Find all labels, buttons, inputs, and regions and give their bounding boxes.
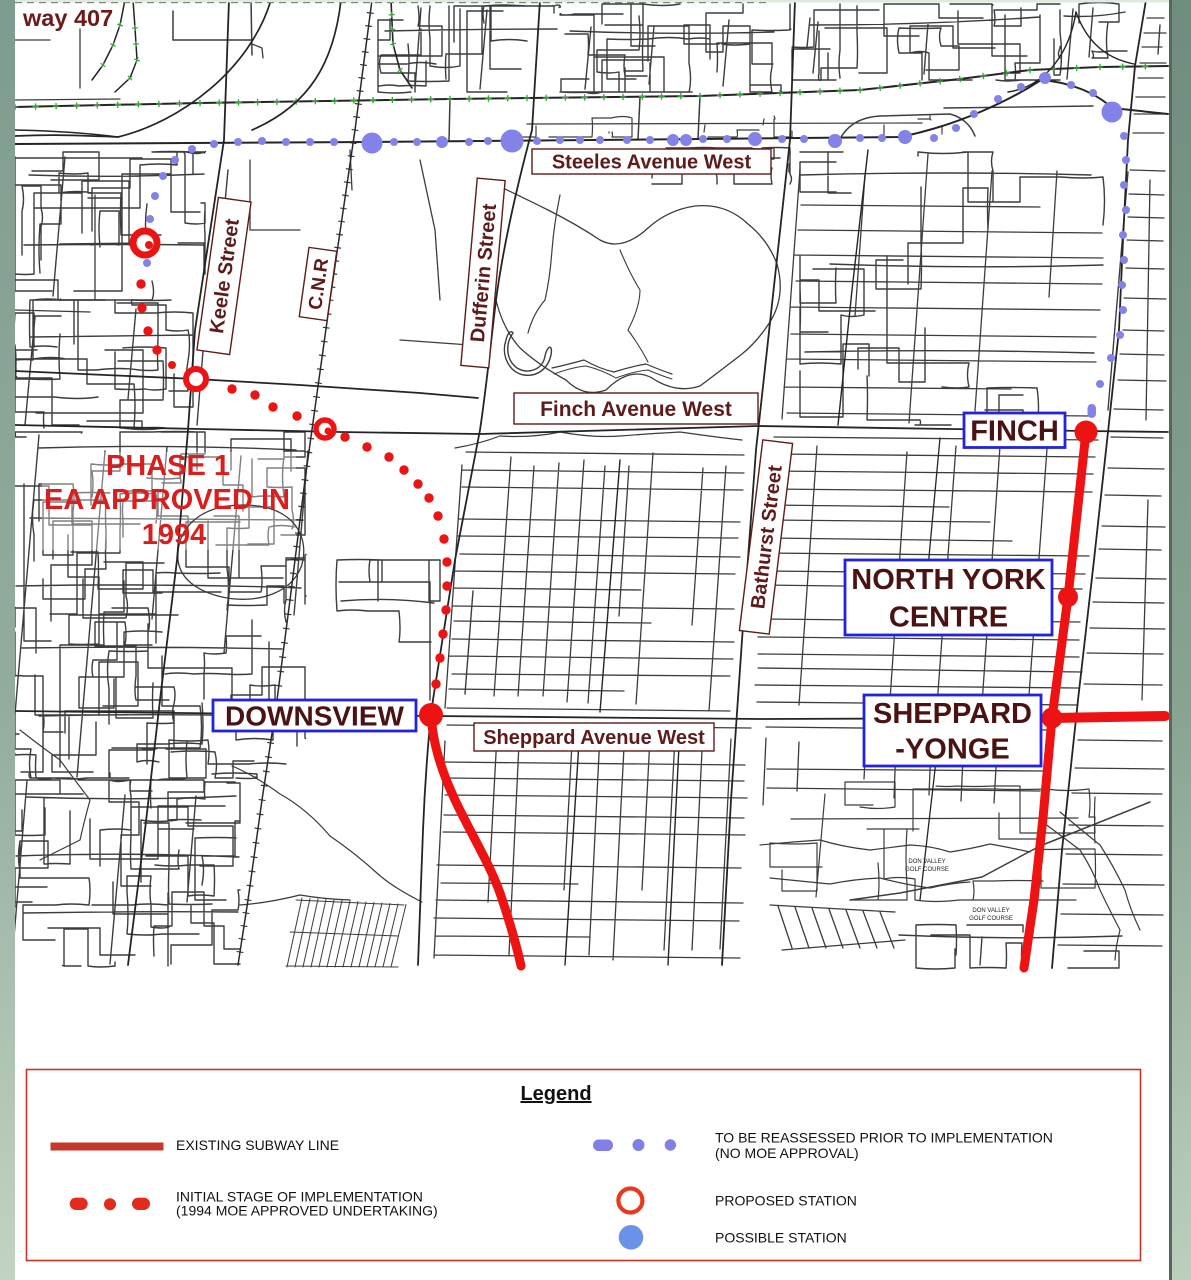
svg-text:Sheppard Avenue West: Sheppard Avenue West [483, 727, 705, 749]
svg-text:PROPOSED STATION: PROPOSED STATION [715, 1193, 857, 1209]
svg-text:Steeles Avenue West: Steeles Avenue West [552, 152, 752, 174]
svg-text:(NO MOE APPROVAL): (NO MOE APPROVAL) [715, 1145, 859, 1161]
svg-text:TO BE REASSESSED PRIOR TO IMPL: TO BE REASSESSED PRIOR TO IMPLEMENTATION [715, 1130, 1053, 1146]
svg-text:SHEPPARD: SHEPPARD [873, 698, 1032, 730]
svg-text:PHASE 1: PHASE 1 [106, 450, 230, 482]
svg-text:Legend: Legend [520, 1083, 591, 1105]
svg-text:GOLF COURSE: GOLF COURSE [969, 916, 1013, 922]
svg-text:(1994 MOE APPROVED UNDERTAKING: (1994 MOE APPROVED UNDERTAKING) [176, 1203, 438, 1219]
svg-text:Finch Avenue West: Finch Avenue West [540, 398, 732, 421]
svg-text:EXISTING SUBWAY LINE: EXISTING SUBWAY LINE [176, 1137, 339, 1153]
svg-text:GOLF COURSE: GOLF COURSE [905, 867, 949, 873]
svg-text:1994: 1994 [142, 519, 207, 551]
svg-text:NORTH YORK: NORTH YORK [851, 564, 1045, 596]
svg-text:POSSIBLE STATION: POSSIBLE STATION [715, 1230, 847, 1246]
svg-text:DON VALLEY: DON VALLEY [972, 908, 1009, 914]
svg-text:EA APPROVED IN: EA APPROVED IN [44, 484, 290, 516]
svg-text:DON VALLEY: DON VALLEY [908, 859, 945, 865]
svg-text:way 407: way 407 [22, 5, 113, 31]
svg-text:-YONGE: -YONGE [895, 733, 1009, 765]
svg-text:FINCH: FINCH [970, 415, 1059, 447]
svg-text:DOWNSVIEW: DOWNSVIEW [225, 700, 404, 731]
svg-text:CENTRE: CENTRE [889, 601, 1008, 633]
